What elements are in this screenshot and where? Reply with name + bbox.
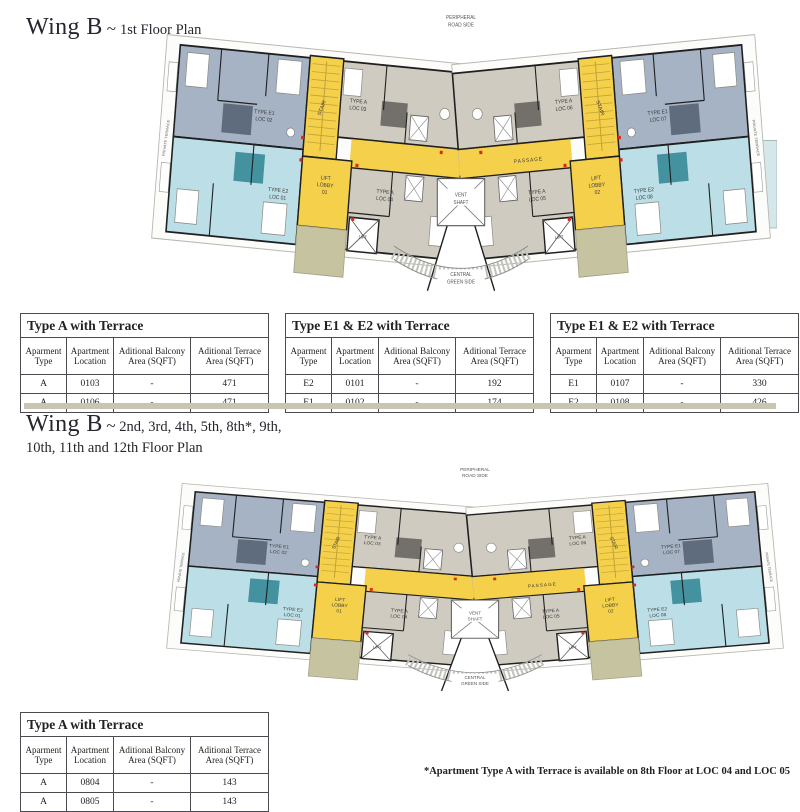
marker-dot <box>493 577 496 580</box>
data-cell: - <box>114 375 191 394</box>
data-cell: 192 <box>456 375 534 394</box>
bath-a <box>380 101 407 128</box>
table-title: Type E1 & E2 with Terrace <box>551 314 799 338</box>
header-cell: Aditional Terrace Area (SQFT) <box>191 338 269 375</box>
table-row: A0103-471 <box>21 375 269 394</box>
data-cell: 143 <box>191 774 269 793</box>
vent-shaft-label: VENT <box>455 192 467 198</box>
header-cell: Aditional Balcony Area (SQFT) <box>644 338 721 375</box>
lift-label: LIFT <box>568 645 577 651</box>
bath-a <box>528 537 555 559</box>
bath-a <box>395 537 422 559</box>
peripheral-road-label: ROAD SIDE <box>462 473 488 478</box>
data-cell: 0103 <box>67 375 114 394</box>
bath-e2 <box>670 578 702 604</box>
central-green-label: CENTRAL <box>450 272 471 278</box>
marker-dot <box>618 136 621 140</box>
data-cell: E2 <box>286 375 332 394</box>
bed <box>200 498 224 527</box>
bath-e1 <box>236 539 268 565</box>
bed <box>713 52 737 88</box>
data-cell: 143 <box>191 793 269 812</box>
wing-left: TYPE E1LOC 02TYPE E2LOC 01TYPE ALOC 03TY… <box>150 35 470 289</box>
footnote: *Apartment Type A with Terrace is availa… <box>424 766 790 777</box>
wing-left: TYPE E1LOC 02TYPE E2LOC 01TYPE ALOC 03TY… <box>165 483 484 688</box>
data-cell: A <box>21 793 67 812</box>
section-divider <box>24 403 776 409</box>
bed <box>736 608 760 637</box>
bath-e2 <box>657 152 689 184</box>
bed <box>620 59 646 95</box>
data-cell: A <box>21 375 67 394</box>
table-type-a-terrace-upper: Type A with TerraceAparment TypeApartmen… <box>20 712 269 812</box>
marker-dot <box>299 158 302 162</box>
data-cell: - <box>644 375 721 394</box>
corner-terrace <box>308 638 361 680</box>
data-cell: 0805 <box>67 793 114 812</box>
vent-shaft-label: VENT <box>469 611 481 616</box>
lobby-label: 01 <box>322 189 328 196</box>
peripheral-road-label: PERIPHERAL <box>446 15 476 21</box>
marker-dot <box>351 217 354 221</box>
data-cell: - <box>114 774 191 793</box>
lobby-label: 01 <box>336 608 342 614</box>
bed <box>190 608 214 637</box>
floor-plan-1st-floor: TYPE E1LOC 02TYPE E2LOC 01TYPE ALOC 03TY… <box>145 8 777 302</box>
marker-dot <box>301 136 304 140</box>
table-type-e1-e2-terrace-2: Type E1 & E2 with TerraceAparment TypeAp… <box>550 313 799 413</box>
marker-dot <box>577 588 580 591</box>
furniture <box>641 559 650 567</box>
header-cell: Apartment Location <box>332 338 379 375</box>
bath-a <box>514 101 541 128</box>
header-cell: Apartment Location <box>597 338 644 375</box>
marker-dot <box>370 588 373 591</box>
floor-plan-upper-floors: TYPE E1LOC 02TYPE E2LOC 01TYPE ALOC 03TY… <box>160 462 790 700</box>
header-cell: Aparment Type <box>21 338 67 375</box>
peripheral-road-label: PERIPHERAL <box>460 467 490 472</box>
header-cell: Aditional Terrace Area (SQFT) <box>191 737 269 774</box>
section2-subtitle-line1: 2nd, 3rd, 4th, 5th, 8th*, 9th, <box>119 419 281 435</box>
bed <box>357 511 377 534</box>
bed <box>261 202 287 236</box>
corner-terrace <box>575 225 628 277</box>
data-cell: 330 <box>721 375 799 394</box>
data-cell: - <box>379 375 456 394</box>
marker-dot <box>568 217 571 221</box>
marker-dot <box>563 164 566 168</box>
marker-dot <box>581 631 584 634</box>
bed <box>290 503 316 532</box>
lift-label: LIFT <box>358 234 367 240</box>
header-cell: Aditional Balcony Area (SQFT) <box>114 737 191 774</box>
marker-dot <box>316 565 319 568</box>
furniture <box>301 559 310 567</box>
table-row: A0804-143 <box>21 774 269 793</box>
bath-e1 <box>682 539 714 565</box>
data-cell: A <box>21 774 67 793</box>
bed <box>343 68 363 97</box>
apartment-table: Type A with TerraceAparment TypeApartmen… <box>20 313 269 413</box>
header-cell: Aditional Balcony Area (SQFT) <box>379 338 456 375</box>
table-row: E20101-192 <box>286 375 534 394</box>
table-row: E10107-330 <box>551 375 799 394</box>
marker-dot <box>355 164 358 168</box>
bath-e1 <box>669 103 701 135</box>
bed <box>559 68 579 97</box>
data-cell: 0101 <box>332 375 379 394</box>
section1-title-main: Wing B <box>26 14 103 40</box>
data-cell: 0107 <box>597 375 644 394</box>
header-cell: Apartment Location <box>67 338 114 375</box>
vent-shaft-label: SHAFT <box>454 200 469 206</box>
section2-title: Wing B ~ 2nd, 3rd, 4th, 5th, 8th*, 9th, … <box>26 414 282 459</box>
corner-terrace <box>589 638 642 680</box>
section2-title-main: Wing B <box>26 411 103 437</box>
bath-e2 <box>248 578 280 604</box>
data-cell: 471 <box>191 375 269 394</box>
apartment-table: Type E1 & E2 with TerraceAparment TypeAp… <box>550 313 799 413</box>
wing-right: TYPE E1LOC 07TYPE E2LOC 08TYPE ALOC 06TY… <box>452 35 772 289</box>
bed <box>635 202 661 236</box>
section1-title-tilde: ~ <box>107 19 116 38</box>
section2-subtitle-line2: 10th, 11th and 12th Floor Plan <box>26 438 282 459</box>
central-green-label: GREEN SIDE <box>461 681 489 686</box>
bed <box>633 503 659 532</box>
table-type-e1-e2-terrace-1: Type E1 & E2 with TerraceAparment TypeAp… <box>285 313 534 413</box>
bed <box>726 498 750 527</box>
lobby-label: LIFT <box>605 597 616 604</box>
table-title: Type E1 & E2 with Terrace <box>286 314 534 338</box>
bed <box>276 59 302 95</box>
apartment-table: Type E1 & E2 with TerraceAparment TypeAp… <box>285 313 534 413</box>
wing-right: TYPE E1LOC 07TYPE E2LOC 08TYPE ALOC 06TY… <box>466 483 785 688</box>
lift-label: LIFT <box>555 234 564 240</box>
table-row: A0805-143 <box>21 793 269 812</box>
header-cell: Aparment Type <box>551 338 597 375</box>
section2-title-line1: Wing B ~ 2nd, 3rd, 4th, 5th, 8th*, 9th, <box>26 414 282 438</box>
data-cell: 0804 <box>67 774 114 793</box>
marker-dot <box>454 577 457 580</box>
table-type-a-terrace-1st: Type A with TerraceAparment TypeApartmen… <box>20 313 269 413</box>
bed <box>573 511 593 534</box>
marker-dot <box>440 151 443 155</box>
corner-terrace <box>294 225 347 277</box>
table-title: Type A with Terrace <box>21 713 269 737</box>
vent-shaft-label: SHAFT <box>468 617 483 622</box>
lift-label: LIFT <box>373 645 382 651</box>
header-cell: Aditional Balcony Area (SQFT) <box>114 338 191 375</box>
bed <box>175 189 199 225</box>
floor-plan-svg: TYPE E1LOC 02TYPE E2LOC 01TYPE ALOC 03TY… <box>145 8 777 302</box>
bed <box>185 52 209 88</box>
furniture <box>286 128 295 138</box>
header-cell: Aparment Type <box>21 737 67 774</box>
central-green-label: GREEN SIDE <box>447 279 476 285</box>
lobby-label: 02 <box>608 608 614 614</box>
bath-e1 <box>221 103 253 135</box>
bed <box>723 189 747 225</box>
bath-e2 <box>233 152 265 184</box>
marker-dot <box>633 583 636 586</box>
peripheral-road-label: ROAD SIDE <box>448 22 475 28</box>
marker-dot <box>479 151 482 155</box>
bed <box>276 619 302 646</box>
bed <box>648 619 674 646</box>
header-cell: Aditional Terrace Area (SQFT) <box>721 338 799 375</box>
header-cell: Apartment Location <box>67 737 114 774</box>
section2-title-tilde: ~ <box>106 416 115 435</box>
marker-dot <box>366 631 369 634</box>
header-cell: Aditional Terrace Area (SQFT) <box>456 338 534 375</box>
floor-plan-svg: TYPE E1LOC 02TYPE E2LOC 01TYPE ALOC 03TY… <box>160 462 790 700</box>
header-cell: Aparment Type <box>286 338 332 375</box>
marker-dot <box>620 158 623 162</box>
data-cell: E1 <box>551 375 597 394</box>
page: Wing B ~ 1st Floor Plan TYPE E1LOC 02TYP… <box>0 0 800 800</box>
furniture <box>627 128 636 138</box>
data-cell: - <box>114 793 191 812</box>
central-green-label: CENTRAL <box>464 675 486 680</box>
table-title: Type A with Terrace <box>21 314 269 338</box>
lobby-label: 02 <box>594 189 600 196</box>
marker-dot <box>314 583 317 586</box>
apartment-table: Type A with TerraceAparment TypeApartmen… <box>20 712 269 812</box>
lobby-label: LIFT <box>335 597 346 604</box>
marker-dot <box>631 565 634 568</box>
